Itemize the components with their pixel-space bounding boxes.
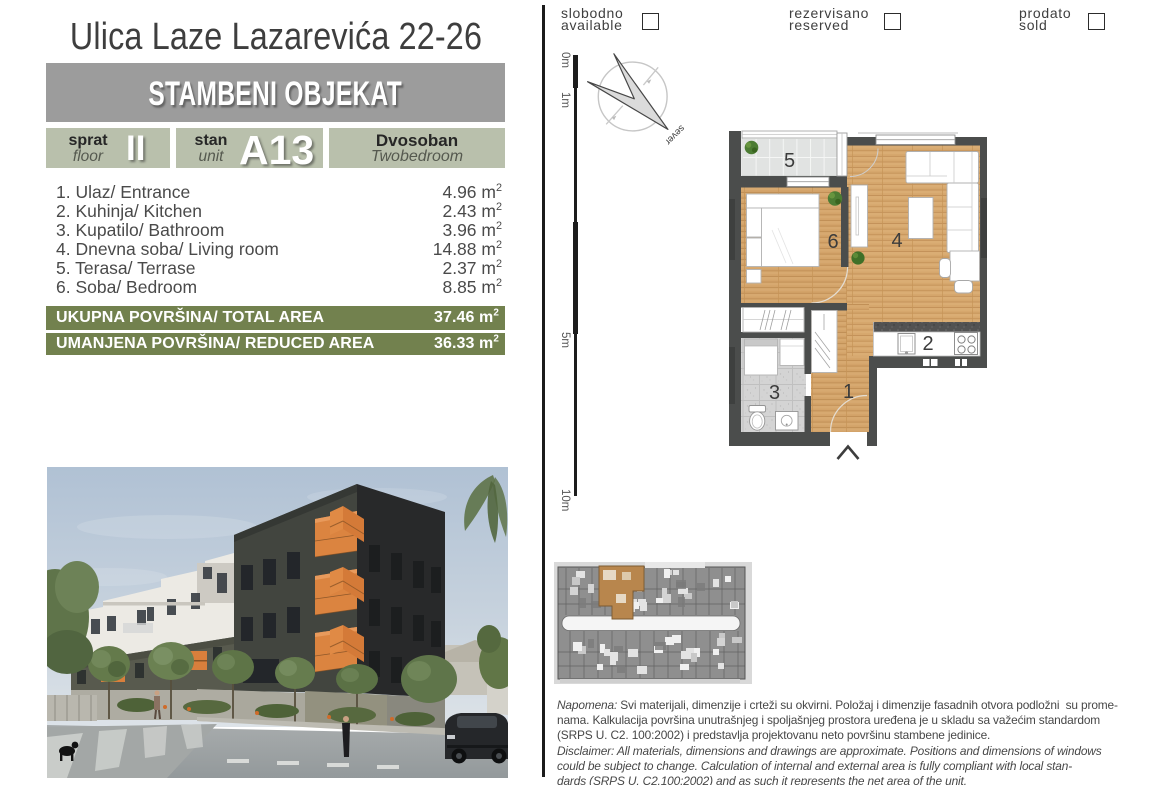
svg-text:5: 5 (784, 150, 795, 172)
svg-text:2: 2 (922, 333, 933, 355)
svg-text:6: 6 (827, 231, 838, 253)
svg-text:3: 3 (769, 382, 780, 404)
svg-text:1: 1 (843, 381, 854, 403)
svg-text:4: 4 (891, 230, 902, 252)
